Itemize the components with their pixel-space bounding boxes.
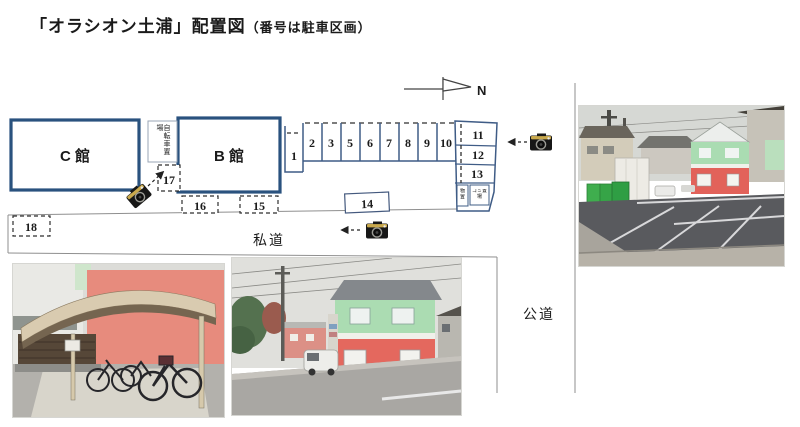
parking-space-1: 1 [285,123,303,172]
photo-parking-lot [578,105,785,267]
camera-icon [530,134,552,151]
parking-space-18: 18 [13,216,50,236]
parked-car [655,186,675,196]
space-label-5: 5 [347,136,353,150]
private-road-label: 私道 [253,232,285,248]
space-label-10: 10 [440,136,452,150]
camera-icon [366,222,388,239]
parking-space-14: 14 [345,192,390,213]
space-label-17: 17 [163,173,175,187]
parking-space-15: 15 [240,196,278,213]
public-road-label: 公道 [523,306,555,322]
photo-bicycle-shed [12,263,225,418]
space-label-8: 8 [405,136,411,150]
building-c-label: C 館 [60,147,90,165]
site-plan-page: 「オラシオン土浦」配置図（番号は駐車区画） 私道 公道 [0,0,800,427]
space-label-11: 11 [472,128,483,142]
bicycle-parking-label: 自転車置場 [156,124,170,160]
space-label-14: 14 [361,197,374,212]
north-label: N [477,83,486,98]
parking-space-16: 16 [182,196,218,213]
parking-space-17: 17 [158,165,180,191]
space-label-3: 3 [328,136,334,150]
north-arrow-icon: N [404,77,486,100]
space-label-15: 15 [253,199,265,213]
storage-label: 物置 [459,188,464,204]
garbage-label: ゴミ置場 [472,189,487,202]
space-label-16: 16 [194,199,206,213]
photo-street-view [231,257,462,416]
space-label-1: 1 [291,149,297,163]
space-label-6: 6 [367,136,373,150]
space-label-18: 18 [25,220,37,234]
space-label-9: 9 [424,136,430,150]
space-label-7: 7 [386,136,392,150]
parking-row-2-10: 2 3 5 6 7 8 9 10 [303,123,456,161]
distant-car [681,185,695,192]
space-label-13: 13 [471,167,483,181]
space-label-12: 12 [472,148,484,162]
right-house [436,306,461,364]
space-label-2: 2 [309,136,315,150]
building-b-label: B 館 [214,147,244,165]
